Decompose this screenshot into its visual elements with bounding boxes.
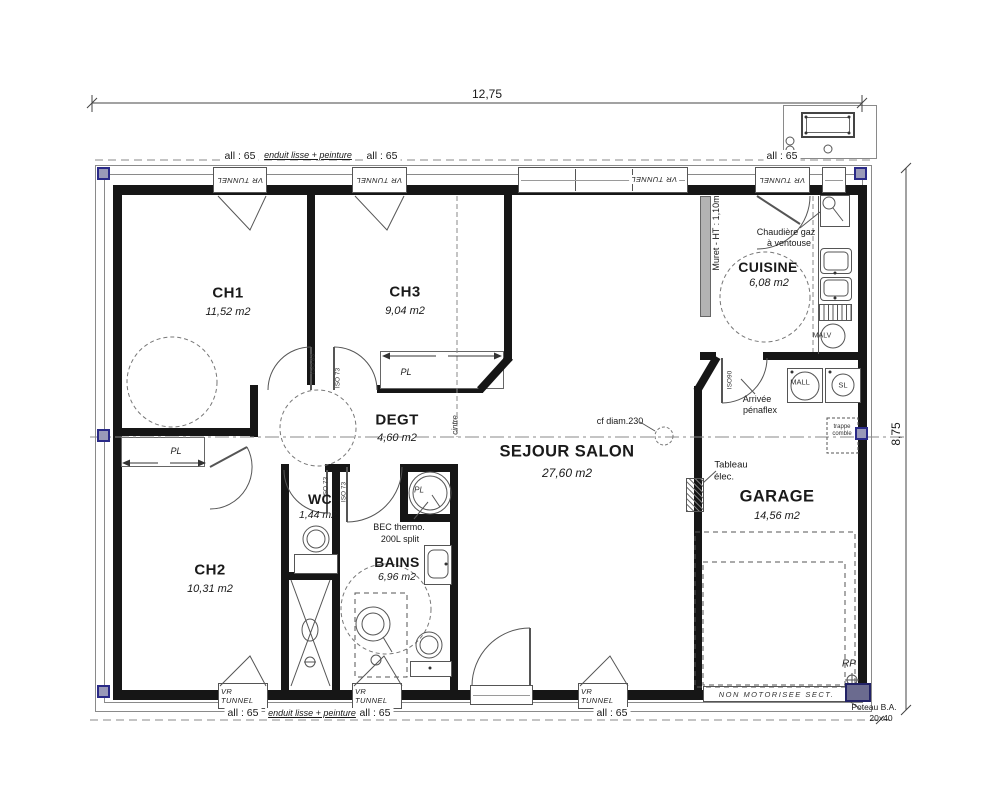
kitchen-sink [820, 277, 852, 301]
cintre-label: cintre [451, 415, 460, 435]
room-area-sejour: 27,60 m2 [542, 466, 592, 480]
window-label: VR TUNNEL [354, 176, 404, 185]
allege-label: all : 65 [764, 150, 801, 162]
room-label-ch2: CH2 [194, 562, 225, 579]
sl-label: SL [838, 381, 847, 390]
window-label: VR TUNNEL [629, 175, 679, 184]
cf-diam-label: cf diam.230 [597, 416, 644, 426]
tableau-electrique [686, 478, 704, 512]
entry-door: VR TUNNEL [755, 167, 810, 193]
wall-segment [400, 464, 457, 472]
arrivee-label-2: pénaflex [743, 405, 777, 415]
chaudiere-label-1: Chaudière gaz [757, 227, 816, 237]
bec-label-1: BEC thermo. [373, 522, 425, 532]
room-area-garage: 14,56 m2 [754, 510, 800, 522]
room-area-degt: 4,60 m2 [377, 432, 417, 444]
mall-label: MALL [790, 378, 810, 387]
room-label-garage: GARAGE [740, 488, 815, 507]
room-area-bains: 6,96 m2 [378, 571, 416, 583]
window-label: VR TUNNEL [579, 687, 627, 705]
window-label: VR TUNNEL [215, 176, 265, 185]
tableau-label-1: Tableau [714, 460, 747, 471]
allege-label: all : 65 [364, 150, 401, 162]
dim-height: 8,75 [889, 422, 903, 445]
window-mullion [575, 169, 576, 191]
window-sejour-top: VR TUNNEL [518, 167, 688, 193]
boiler-box [820, 195, 850, 227]
post-marker [855, 427, 868, 440]
closet-label-pl: PL [170, 446, 181, 456]
door-label-iso73: ISO 73 [341, 482, 348, 502]
allege-label: all : 65 [222, 150, 259, 162]
closet-pl-ch1-ch2 [121, 437, 205, 467]
allege-label: all : 65 [594, 707, 631, 719]
muret-low-wall [700, 196, 711, 317]
poteau-ba [845, 683, 871, 702]
room-area-ch2: 10,31 m2 [187, 583, 233, 595]
bec-label-2: 200L split [381, 534, 419, 544]
room-area-wc: 1,44 m2 [299, 509, 337, 521]
wall-segment [400, 514, 457, 522]
wall-segment [763, 352, 867, 360]
window-corner-kitchen [822, 167, 846, 193]
trappe-label-2: comble [832, 431, 851, 437]
window-label: VR TUNNEL [219, 687, 267, 705]
malv-label: MALV [813, 333, 832, 340]
garage-sectional-door: NON MOTORISEE SECT. [703, 686, 850, 702]
post-marker [97, 167, 110, 180]
allege-label: all : 65 [225, 707, 262, 719]
inner-wall-line [104, 174, 863, 703]
tableau-label-2: élec. [714, 472, 734, 483]
enduit-label: enduit lisse + peinture [261, 150, 355, 160]
poteau-label-1: Poteau B.A. [851, 702, 896, 712]
door-label-iso90: ISO90 [727, 371, 734, 389]
closet-label-pl: PL [414, 486, 424, 495]
room-area-ch3: 9,04 m2 [385, 305, 425, 317]
window-ch2: VR TUNNEL [218, 683, 268, 709]
post-marker [97, 685, 110, 698]
room-label-sejour: SEJOUR SALON [500, 443, 635, 462]
french-door-sejour [470, 685, 533, 705]
room-label-ch1: CH1 [212, 285, 243, 302]
room-label-ch3: CH3 [389, 284, 420, 301]
door-label-iso83: ISO 83 [310, 354, 317, 374]
closet-label-pl: PL [400, 367, 411, 377]
wall-segment [121, 428, 251, 436]
window-bains: VR TUNNEL [352, 683, 402, 709]
room-label-degt: DEGT [375, 412, 418, 429]
window-sejour-bottom: VR TUNNEL [578, 683, 628, 709]
enduit-label: enduit lisse + peinture [265, 708, 359, 718]
kitchen-counter-line [818, 196, 819, 354]
door-label-iso73: ISO 73 [323, 477, 330, 497]
wall-segment [250, 385, 258, 437]
allege-label: all : 65 [357, 707, 394, 719]
floor-plan: VR TUNNEL VR TUNNEL VR TUNNEL VR TUNNEL … [0, 0, 1007, 800]
trappe-label-1: trappe [833, 424, 850, 430]
window-ch1: VR TUNNEL [213, 167, 267, 193]
closet-pl-ch3 [380, 351, 504, 389]
wall-segment [694, 386, 702, 692]
poteau-label-2: 20x40 [869, 713, 892, 723]
garage-door-label: NON MOTORISEE SECT. [719, 690, 835, 699]
kitchen-sink [820, 248, 852, 274]
door-label-iso73: ISO 73 [335, 368, 342, 388]
room-label-bains: BAINS [374, 554, 420, 570]
window-label: VR TUNNEL [353, 687, 401, 705]
room-area-ch1: 11,52 m2 [205, 306, 250, 318]
rp-label: RP [842, 659, 856, 670]
wc-cistern [294, 554, 338, 574]
room-area-cuisine: 6,08 m2 [749, 277, 789, 289]
room-label-cuisine: CUISINE [738, 259, 798, 275]
wall-segment [700, 352, 716, 360]
dish-drainer [818, 304, 852, 321]
vanity-unit [410, 661, 452, 677]
wall-segment [325, 464, 350, 472]
window-label: VR TUNNEL [757, 176, 807, 185]
post-marker [854, 167, 867, 180]
dim-width: 12,75 [472, 87, 502, 101]
bains-wall-cabinet [424, 545, 452, 585]
window-ch3: VR TUNNEL [352, 167, 407, 193]
wall-segment [504, 193, 512, 361]
exterior-unit-inner [806, 117, 850, 133]
arrivee-label-1: Arrivée [743, 394, 772, 404]
chaudiere-label-2: à ventouse [767, 238, 811, 248]
post-marker [97, 429, 110, 442]
muret-label: Muret - HT : 1,10m [711, 195, 721, 270]
